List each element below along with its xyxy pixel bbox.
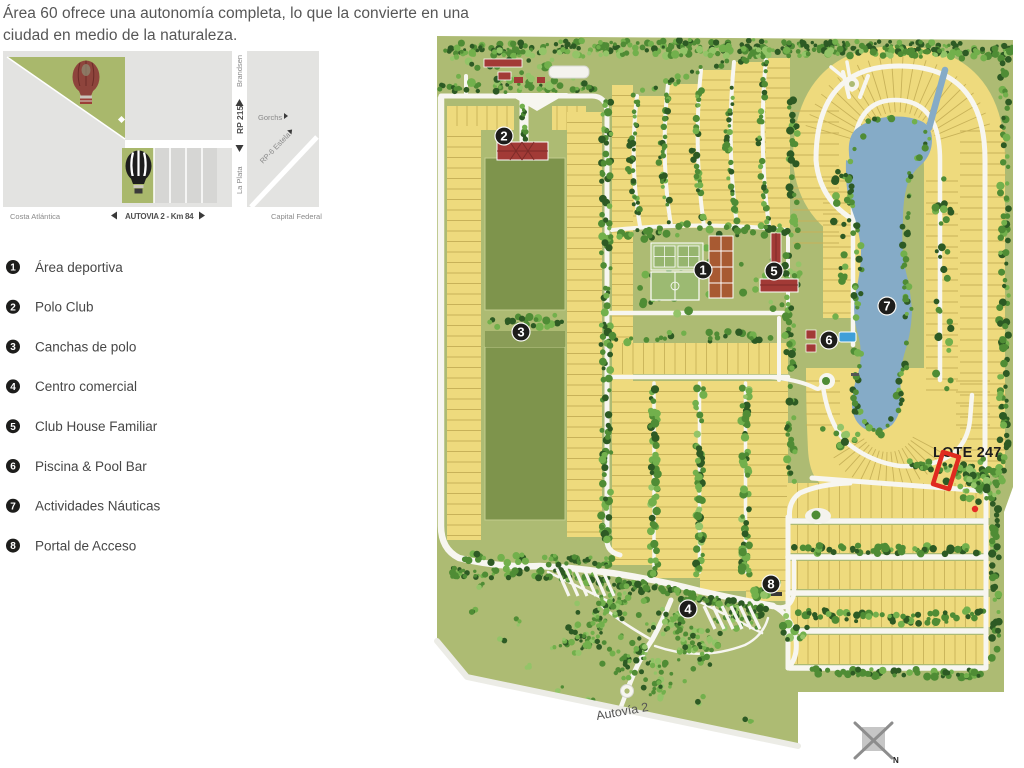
svg-text:4: 4	[684, 602, 692, 617]
svg-text:AUTOVIA 2 - Km 84: AUTOVIA 2 - Km 84	[125, 212, 194, 221]
svg-text:Piscina & Pool Bar: Piscina & Pool Bar	[35, 459, 147, 474]
svg-text:3: 3	[517, 325, 524, 340]
svg-text:4: 4	[10, 382, 16, 393]
svg-text:Canchas de polo: Canchas de polo	[35, 339, 136, 354]
svg-text:8: 8	[767, 577, 774, 592]
svg-text:Gorchs: Gorchs	[258, 113, 282, 122]
svg-text:7: 7	[10, 501, 16, 512]
svg-text:2: 2	[500, 129, 507, 144]
svg-text:7: 7	[883, 299, 890, 314]
svg-text:RP 215: RP 215	[235, 106, 245, 134]
svg-text:6: 6	[825, 333, 832, 348]
svg-text:8: 8	[10, 541, 16, 552]
svg-text:Área 60 ofrece una autonomía c: Área 60 ofrece una autonomía completa, l…	[3, 5, 469, 22]
svg-text:Brandsen: Brandsen	[235, 55, 244, 87]
svg-text:1: 1	[10, 263, 16, 274]
svg-text:Polo Club: Polo Club	[35, 300, 94, 315]
svg-text:Portal de Acceso: Portal de Acceso	[35, 538, 136, 553]
svg-text:Costa Atlántica: Costa Atlántica	[10, 212, 61, 221]
svg-text:ciudad en medio de la naturale: ciudad en medio de la naturaleza.	[3, 27, 237, 44]
svg-text:Capital Federal: Capital Federal	[271, 212, 322, 221]
svg-text:2: 2	[10, 302, 16, 313]
svg-text:5: 5	[770, 264, 777, 279]
svg-text:Club House Familiar: Club House Familiar	[35, 419, 158, 434]
svg-text:1: 1	[699, 263, 706, 278]
svg-text:6: 6	[10, 462, 16, 473]
svg-text:Centro comercial: Centro comercial	[35, 379, 137, 394]
svg-text:3: 3	[10, 342, 16, 353]
svg-text:Área deportiva: Área deportiva	[35, 260, 123, 275]
svg-text:Actividades Náuticas: Actividades Náuticas	[35, 499, 161, 514]
svg-text:5: 5	[10, 422, 16, 433]
svg-text:N: N	[893, 756, 899, 765]
svg-text:La Plata: La Plata	[235, 166, 244, 194]
